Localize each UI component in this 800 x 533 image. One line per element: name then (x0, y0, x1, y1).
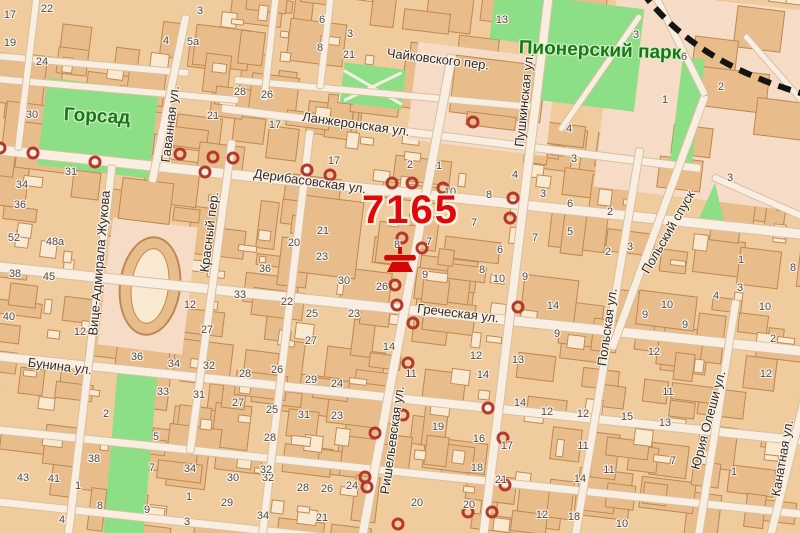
poi-marker[interactable] (207, 151, 220, 164)
house-number: 36 (131, 351, 143, 363)
house-number: 13 (512, 354, 524, 366)
building (7, 282, 38, 309)
house-number: 21 (316, 512, 328, 524)
house-number: 1 (731, 466, 737, 478)
house-number: 22 (281, 296, 293, 308)
courtyard (334, 427, 351, 446)
house-number: 3 (727, 172, 733, 184)
house-number: 8 (97, 500, 103, 512)
house-number: 1 (662, 94, 668, 106)
building (255, 200, 279, 250)
house-number: 8 (317, 42, 323, 54)
house-number: 4 (512, 169, 518, 181)
house-number: 2 (605, 246, 611, 258)
courtyard (413, 449, 426, 461)
house-number: 10 (616, 518, 628, 530)
house-number: 34 (16, 179, 28, 191)
house-number: 12 (74, 326, 86, 338)
courtyard (200, 418, 213, 430)
house-number: 11 (405, 368, 416, 380)
house-number: 12 (648, 346, 660, 358)
courtyard (279, 51, 291, 62)
house-number: 12 (184, 299, 196, 311)
poi-marker[interactable] (369, 427, 382, 440)
house-number: 3 (627, 241, 633, 253)
house-number: 22 (41, 3, 53, 15)
courtyard (486, 335, 503, 344)
house-number: 34 (184, 463, 196, 475)
house-number: 29 (221, 497, 233, 509)
house-number: 2 (718, 81, 724, 93)
house-number: 3 (184, 516, 190, 528)
house-number: 12 (577, 408, 589, 420)
house-number: 26 (376, 281, 388, 293)
house-number: 8 (479, 264, 485, 276)
courtyard (271, 499, 286, 515)
house-number: 31 (298, 409, 310, 421)
building (118, 177, 175, 225)
courtyard (692, 234, 709, 253)
house-number: 2 (407, 159, 413, 171)
house-number: 9 (422, 269, 428, 281)
house-number: 10 (759, 301, 771, 313)
poi-marker[interactable] (512, 301, 525, 314)
house-number: 5а (187, 36, 199, 48)
courtyard (280, 31, 290, 39)
courtyard (212, 62, 228, 73)
house-number: 32 (260, 464, 272, 476)
poi-marker[interactable] (392, 518, 405, 531)
house-number: 1 (436, 160, 442, 172)
house-number: 19 (432, 421, 444, 433)
house-number: 18 (568, 511, 580, 523)
house-number: 9 (682, 319, 688, 331)
courtyard (62, 251, 72, 264)
house-number: 12 (760, 368, 772, 380)
house-number: 20 (288, 237, 300, 249)
house-number: 38 (88, 453, 100, 465)
poi-marker[interactable] (407, 317, 420, 330)
poi-marker[interactable] (467, 116, 480, 129)
house-number: 27 (305, 335, 317, 347)
house-number: 28 (297, 482, 309, 494)
courtyard (597, 189, 613, 208)
house-number: 30 (227, 472, 239, 484)
house-number: 17 (501, 440, 513, 452)
building (737, 312, 769, 335)
house-number: 31 (193, 389, 205, 401)
house-number: 25 (306, 308, 318, 320)
house-number: 6 (497, 244, 503, 256)
building (559, 212, 587, 256)
poi-marker[interactable] (389, 279, 402, 292)
courtyard (46, 329, 60, 339)
poi-marker[interactable] (174, 148, 187, 161)
house-number: 5 (567, 226, 573, 238)
house-number: 26 (261, 89, 273, 101)
house-number: 1 (75, 480, 81, 492)
house-number: 10 (493, 273, 505, 285)
courtyard (451, 449, 465, 464)
house-number: 23 (316, 251, 328, 263)
house-number: 9 (522, 271, 528, 283)
house-number: 32 (203, 360, 215, 372)
house-number: 9 (144, 504, 150, 516)
courtyard (450, 368, 470, 386)
house-number: 29 (305, 374, 317, 386)
courtyard (291, 435, 312, 447)
poi-marker[interactable] (361, 481, 374, 494)
house-number: 3 (571, 153, 577, 165)
house-number: 9 (554, 328, 560, 340)
house-number: 4 (59, 514, 65, 526)
map-canvas[interactable]: 7165 17221924345а28263021173134365248а38… (0, 0, 800, 533)
house-number: 1 (186, 491, 192, 503)
house-number: 5 (153, 431, 159, 443)
courtyard (693, 359, 705, 374)
house-number: 40 (3, 311, 15, 323)
courtyard (38, 396, 57, 411)
house-number: 34 (257, 510, 269, 522)
house-number: 28 (264, 432, 276, 444)
courtyard (43, 298, 52, 314)
courtyard (566, 334, 585, 350)
building (796, 246, 800, 293)
house-number: 24 (331, 378, 343, 390)
house-number: 17 (4, 9, 16, 21)
house-number: 13 (496, 14, 508, 26)
house-number: 25 (266, 404, 278, 416)
house-number: 21 (317, 225, 329, 237)
house-number: 16 (473, 433, 485, 445)
house-number: 2 (103, 408, 109, 420)
courtyard (345, 132, 360, 150)
poi-marker[interactable] (486, 506, 499, 519)
house-number: 14 (574, 473, 586, 485)
house-number: 2 (607, 206, 613, 218)
house-number: 52 (8, 232, 20, 244)
house-number: 8 (486, 189, 492, 201)
courtyard (354, 0, 374, 2)
courtyard (257, 229, 271, 241)
courtyard (359, 136, 374, 146)
house-number: 36 (14, 199, 26, 211)
courtyard (493, 517, 511, 533)
poi-marker[interactable] (482, 402, 495, 415)
house-number: 23 (348, 308, 360, 320)
house-number: 27 (232, 397, 244, 409)
house-number: 21 (207, 110, 219, 122)
courtyard (633, 428, 654, 447)
building (753, 97, 800, 141)
poi-marker[interactable] (227, 152, 240, 165)
poi-marker[interactable] (199, 166, 212, 179)
house-number: 34 (168, 358, 180, 370)
house-number: 11 (662, 386, 673, 398)
building (0, 320, 21, 344)
courtyard (470, 332, 482, 349)
house-number: 28 (239, 368, 251, 380)
courtyard (462, 485, 475, 494)
house-number: 36 (259, 263, 271, 275)
house-number: 33 (234, 289, 246, 301)
house-number: 11 (577, 440, 588, 452)
house-number: 45 (43, 271, 55, 283)
courtyard (535, 174, 552, 189)
building (437, 248, 455, 267)
house-number: 7 (670, 455, 676, 467)
house-number: 3 (197, 5, 203, 17)
poi-marker[interactable] (507, 192, 520, 205)
house-number: 3 (633, 29, 639, 41)
house-number: 2 (770, 333, 776, 345)
house-number: 21 (343, 49, 355, 61)
map-highlight-number: 7165 (362, 190, 459, 230)
building (733, 5, 786, 53)
house-number: 11 (603, 464, 614, 476)
house-number: 12 (536, 509, 548, 521)
house-number: 7 (471, 217, 477, 229)
building (237, 30, 266, 67)
house-number: 6 (567, 198, 573, 210)
house-number: 43 (17, 472, 29, 484)
house-number: 3 (737, 282, 743, 294)
house-number: 3 (540, 188, 546, 200)
house-number: 9 (642, 309, 648, 321)
house-number: 1 (738, 254, 744, 266)
house-number: 20 (463, 499, 475, 511)
monument-icon (380, 246, 420, 276)
house-number: 28 (234, 86, 246, 98)
house-number: 38 (9, 268, 21, 280)
building (423, 435, 449, 467)
house-number: 3 (347, 28, 353, 40)
courtyard (785, 0, 800, 6)
house-number: 24 (346, 480, 358, 492)
house-number: 7 (149, 462, 155, 474)
house-number: 31 (65, 166, 77, 178)
house-number: 14 (514, 397, 526, 409)
house-number: 17 (328, 155, 340, 167)
park-label: Горсад (63, 104, 131, 129)
house-number: 30 (338, 275, 350, 287)
house-number: 41 (48, 473, 60, 485)
building (369, 0, 398, 28)
courtyard (457, 172, 466, 186)
house-number: 12 (470, 350, 482, 362)
house-number: 14 (383, 341, 395, 353)
house-number: 4 (713, 290, 719, 302)
courtyard (670, 259, 686, 267)
house-number: 14 (547, 300, 559, 312)
house-number: 27 (201, 324, 213, 336)
house-number: 21 (495, 474, 507, 486)
poi-marker[interactable] (504, 212, 517, 225)
house-number: 7 (426, 236, 432, 248)
building (172, 207, 200, 225)
poi-marker[interactable] (391, 299, 404, 312)
house-number: 6 (319, 14, 325, 26)
house-number: 48а (46, 236, 64, 248)
house-number: 13 (659, 417, 671, 429)
house-number: 4 (566, 123, 572, 135)
house-number: 8 (790, 262, 796, 274)
house-number: 4 (163, 35, 169, 47)
monument-marker[interactable] (380, 246, 420, 276)
house-number: 33 (157, 386, 169, 398)
house-number: 10 (661, 299, 673, 311)
courtyard (231, 18, 245, 26)
building (401, 8, 450, 34)
house-number: 26 (271, 364, 283, 376)
house-number: 14 (477, 369, 489, 381)
house-number: 23 (331, 410, 343, 422)
poi-marker[interactable] (27, 147, 40, 160)
courtyard (477, 389, 490, 400)
building (672, 352, 696, 383)
house-number: 12 (541, 406, 553, 418)
house-number: 19 (4, 37, 16, 49)
house-number: 7 (532, 232, 538, 244)
courtyard (365, 54, 376, 65)
house-number: 20 (411, 497, 423, 509)
house-number: 18 (471, 462, 483, 474)
house-number: 26 (321, 483, 333, 495)
house-number: 17 (269, 119, 281, 131)
house-number: 30 (26, 109, 38, 121)
poi-marker[interactable] (89, 156, 102, 169)
house-number: 6 (681, 51, 687, 63)
house-number: 24 (36, 56, 48, 68)
house-number: 15 (621, 411, 633, 423)
